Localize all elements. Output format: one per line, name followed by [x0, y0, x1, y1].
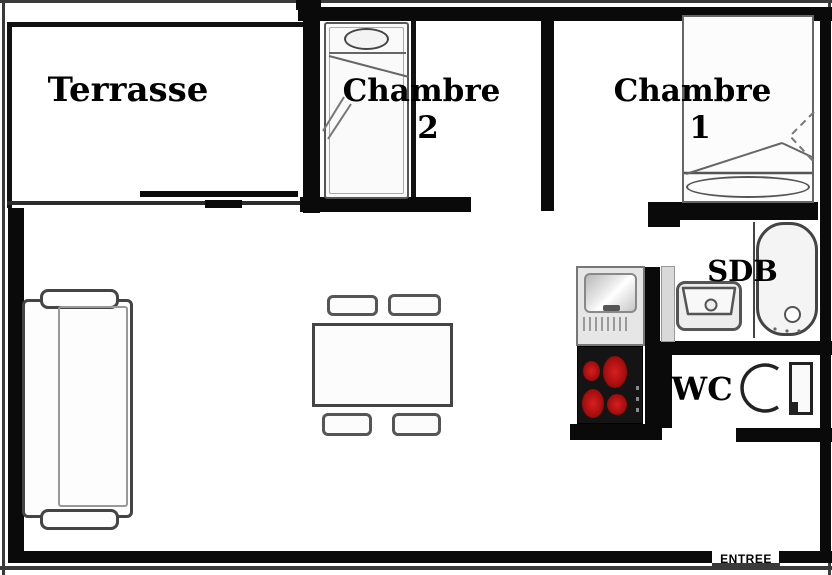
wall-chambre1-bottom-stub — [648, 202, 680, 227]
bathtub-drain — [784, 306, 801, 323]
outer-frame-top — [0, 0, 832, 3]
wall-terrace-left — [7, 22, 12, 208]
stove-control-1 — [636, 386, 639, 390]
chair-top-right — [388, 294, 441, 316]
terrace-sliding-door-leaf — [205, 200, 242, 208]
label-chambre2-number: 2 — [404, 113, 452, 144]
stove-burner-1 — [583, 361, 600, 381]
wall-sdb-wc — [657, 341, 832, 355]
terrace-sliding-door-line — [7, 201, 303, 205]
wall-chambre2-left — [303, 7, 320, 213]
stove-control-3 — [636, 408, 639, 412]
wall-divider-ch2-ch1 — [541, 7, 554, 211]
toilet-tank-mark — [789, 402, 798, 414]
outer-frame-bottom — [0, 566, 832, 570]
wall-terrace-top — [7, 22, 303, 27]
wall-chambre2-bottom — [300, 197, 471, 212]
pillow-chambre1 — [686, 176, 810, 198]
label-chambre1-number: 1 — [676, 113, 724, 144]
wall-kitchen-bottom-stub — [570, 424, 662, 440]
chair-bottom-right — [392, 413, 441, 436]
sofa-armrest-bottom — [40, 509, 119, 530]
stove-burner-2 — [603, 356, 627, 388]
dining-table — [312, 323, 453, 407]
label-terrasse: Terrasse — [38, 73, 218, 107]
sofa-seat-inner — [58, 306, 128, 507]
chair-bottom-left — [322, 413, 372, 436]
chair-top-left — [327, 295, 378, 316]
sdb-door-leaf — [661, 266, 675, 342]
stove-control-2 — [636, 397, 639, 401]
label-wc: WC — [668, 373, 736, 405]
floor-plan: Terrasse Chambre 2 Chambre 1 SDB WC ENTR… — [0, 0, 832, 575]
label-chambre2: Chambre — [334, 76, 509, 107]
bed-chambre1 — [682, 15, 814, 203]
wall-wc-bottom — [736, 428, 832, 442]
label-sdb: SDB — [700, 257, 785, 286]
bed-chambre2-inner — [329, 27, 404, 194]
kitchen-faucet — [603, 305, 620, 311]
label-chambre1: Chambre — [605, 76, 780, 107]
outer-frame-left — [2, 0, 5, 575]
terrace-window-bar — [140, 191, 298, 197]
toilet-bowl — [742, 365, 778, 411]
pillow-chambre2 — [344, 28, 389, 50]
stove-burner-4 — [607, 394, 627, 415]
wall-right-main — [820, 7, 831, 563]
wall-bottom-main — [8, 551, 712, 563]
label-entree: ENTREE — [710, 553, 782, 565]
stove-burner-3 — [582, 389, 604, 418]
washbasin — [676, 281, 742, 331]
